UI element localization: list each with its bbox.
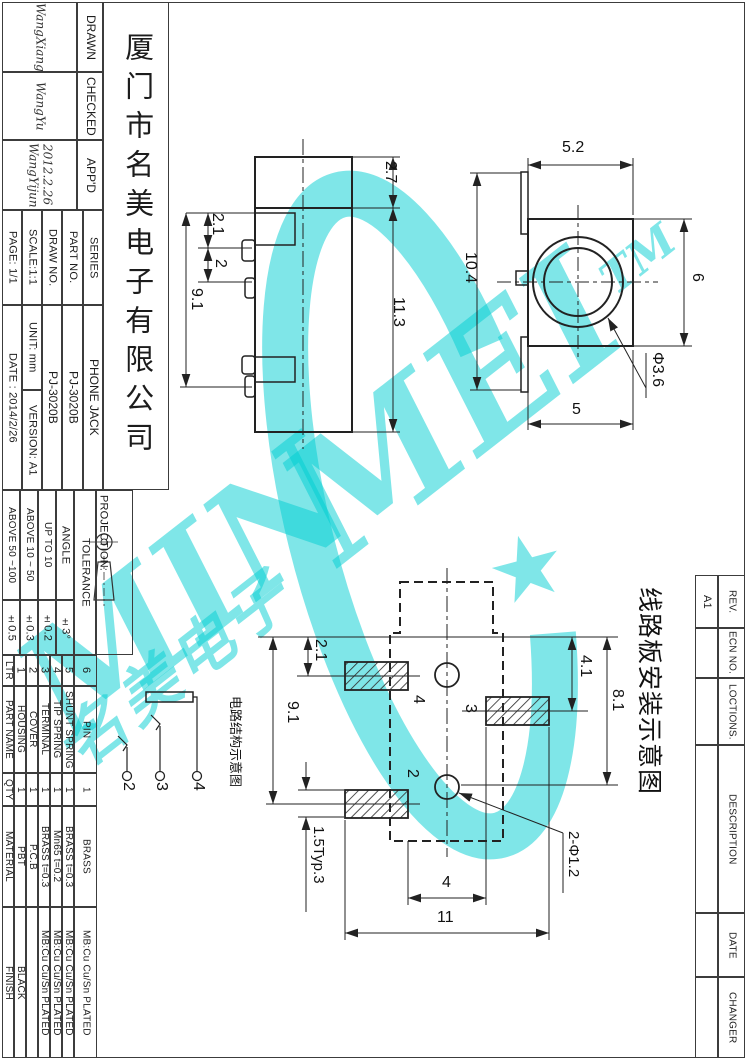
checked-label: CHECKED — [77, 72, 103, 140]
part-row-material: BRASS t=0.3 — [38, 806, 50, 907]
dim-6: 6 — [689, 273, 705, 282]
page-header: PAGE: 1/1 — [2, 210, 22, 305]
description-header: DESCRIPTION — [718, 745, 745, 913]
pcb-dim-4: 4 — [442, 875, 451, 891]
loctions-header: LOCTIONS. — [718, 678, 745, 745]
part-row-qty: 1 — [50, 773, 62, 806]
appd-signature-date: 2012.2.26 — [40, 144, 54, 205]
part-row-material: BRASS — [74, 806, 97, 907]
pcb-dim-8-1: 8.1 — [609, 689, 625, 711]
part-row-material: PBT — [14, 806, 26, 907]
series-header: SERIES — [83, 210, 103, 305]
part-row-finish — [26, 907, 38, 1058]
part-row-qty: 1 — [74, 773, 97, 806]
drawn-signature: WangXiang — [2, 2, 77, 72]
changer-header: CHANGER — [718, 977, 745, 1058]
part-row-material: BRASS t=0.3 — [62, 806, 74, 907]
part-row-finish: MB:Cu Cu/Sn PLATED — [50, 907, 62, 1058]
company-name: 厦门市名美电子有限公司 — [119, 32, 152, 461]
dim-2-1: 2.1 — [209, 213, 225, 235]
parts-header-finish: FINISH — [2, 907, 14, 1058]
part-row-material: Mn65 t=0.2 — [50, 806, 62, 907]
drawno-header: DRAW NO. — [42, 210, 62, 305]
drawno-value: PJ-3020B — [42, 305, 62, 490]
schematic-pin-2: 2 — [120, 782, 136, 791]
schematic-pin-3: 3 — [153, 782, 169, 791]
part-row-ltr: 3 — [38, 655, 50, 686]
part-row-ltr: 4 — [50, 655, 62, 686]
rev-header: REV. — [718, 575, 745, 628]
dim-2: 2 — [212, 259, 228, 268]
projection-cell: PROJECTION: — [96, 490, 133, 655]
tol-range-above50: ABOVE 50 ~100 — [2, 490, 20, 600]
pcb-holes-label: 2-Φ1.2 — [566, 831, 581, 877]
unit-value: UNIT: mm — [22, 305, 42, 390]
tol-range-upto10: UP TO 10 — [38, 490, 56, 600]
rev-value: A1 — [695, 575, 718, 628]
pad-label-3: 3 — [462, 704, 478, 713]
pcb-dim-2-1: 2.1 — [312, 639, 328, 661]
tol-value-angle: ±3° — [56, 600, 74, 655]
part-row-finish: MB:Cu Cu/Sn PLATED — [74, 907, 97, 1058]
series-value: PHONE JACK — [83, 305, 103, 490]
projection-label: PROJECTION: — [97, 491, 110, 571]
ecn-header: ECN NO. — [718, 628, 745, 678]
pad-label-4: 4 — [410, 695, 426, 704]
part-row-ltr: 2 — [26, 655, 38, 686]
dim-10-4: 10.4 — [462, 252, 478, 283]
rev-empty-cell — [695, 678, 718, 745]
part-row-name: COVER — [26, 686, 38, 773]
tol-value-upto10: ±0.2 — [38, 600, 56, 655]
pcb-dim-4-1: 4.1 — [577, 655, 593, 677]
parts-header-partname: PART NAME — [2, 686, 14, 773]
drawn-label: DRAWN — [77, 2, 103, 72]
part-row-qty: 1 — [26, 773, 38, 806]
tolerance-label: TOLERANCE — [74, 490, 96, 655]
part-row-material: P.C.B — [26, 806, 38, 907]
drawing-sheet: MIN MEI TM ★ 名美电子 — [0, 0, 747, 1060]
tol-value-above50: ±0.5 — [2, 600, 20, 655]
part-row-ltr: 5 — [62, 655, 74, 686]
part-row-name: TERMINAL — [38, 686, 50, 773]
part-row-name: TIP SPRING — [50, 686, 62, 773]
appd-signature-name: WangYijun — [26, 143, 40, 208]
rev-empty-cell — [695, 745, 718, 913]
pad-label-2: 2 — [404, 769, 420, 778]
schematic-title: 电路结构示意图 — [227, 696, 246, 787]
dim-5-2: 5.2 — [562, 140, 584, 156]
part-row-ltr: 1 — [14, 655, 26, 686]
scale-header: SCALE:1:1 — [22, 210, 42, 305]
partno-value: PJ-3020B — [62, 305, 83, 490]
parts-header-ltr: LTR — [2, 655, 14, 686]
part-row-qty: 1 — [62, 773, 74, 806]
pcb-dim-11: 11 — [437, 910, 454, 926]
dim-2-7: 2.7 — [382, 161, 398, 183]
appd-signature: WangYijun 2012.2.26 — [2, 140, 77, 210]
part-row-qty: 1 — [38, 773, 50, 806]
part-row-ltr: 6 — [74, 655, 97, 686]
date-value: DATE : 2014/2/26 — [2, 305, 22, 490]
partno-header: PART NO. — [62, 210, 83, 305]
tol-value-above10: ±0.3 — [20, 600, 38, 655]
dim-dia-3-6: Φ3.6 — [649, 352, 665, 387]
part-row-finish: MB:Cu Cu/Sn PLATED — [38, 907, 50, 1058]
pcb-dim-9-1: 9.1 — [284, 701, 300, 723]
date-header: DATE — [718, 913, 745, 977]
part-row-finish: MB:Cu Cu/Sn PLATED — [62, 907, 74, 1058]
parts-header-qty: QTY — [2, 773, 14, 806]
dim-11-3: 11.3 — [390, 297, 406, 327]
part-row-qty: 1 — [14, 773, 26, 806]
part-row-name: SHUNT SPRING — [62, 686, 74, 773]
version-value: VERSION: A1 — [22, 390, 42, 490]
dim-5: 5 — [572, 402, 581, 418]
schematic-pin-4: 4 — [190, 782, 206, 791]
rev-empty-cell — [695, 628, 718, 678]
appd-label: APP'D — [77, 140, 103, 210]
rev-empty-cell — [695, 913, 718, 977]
tol-range-above10: ABOVE 10 ~ 50 — [20, 490, 38, 600]
tol-range-angle: ANGLE — [56, 490, 74, 600]
pcb-layout-title: 线路板安装示意图 — [633, 587, 669, 795]
checked-signature: WangYu — [2, 72, 77, 140]
part-row-finish: BLACK — [14, 907, 26, 1058]
part-row-name: PIN — [74, 686, 97, 773]
company-name-cell: 厦门市名美电子有限公司 — [103, 2, 169, 490]
part-row-name: HOUSING — [14, 686, 26, 773]
dim-9-1: 9.1 — [188, 288, 204, 310]
parts-header-material: MATERIAL — [2, 806, 14, 907]
pcb-pitch-label: 1.5Typ.3 — [311, 826, 326, 884]
rev-empty-cell — [695, 977, 718, 1058]
